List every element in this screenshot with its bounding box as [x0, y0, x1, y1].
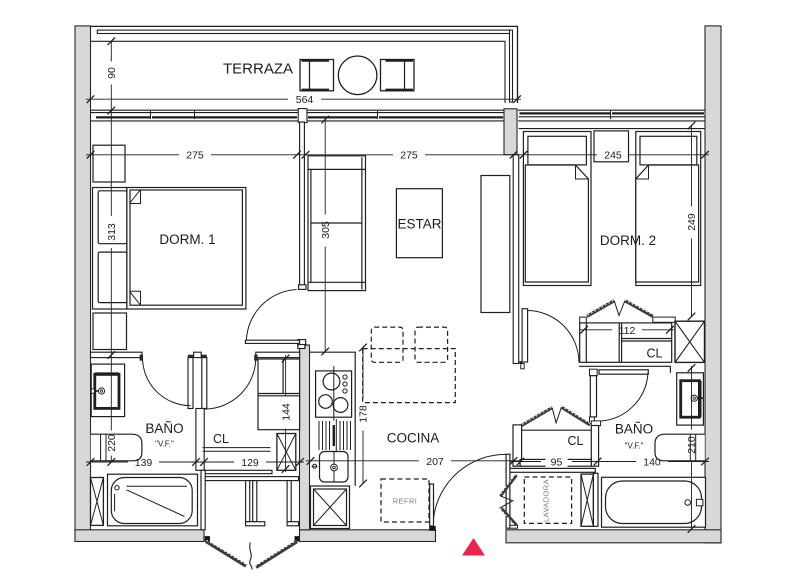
- svg-text:DORM. 2: DORM. 2: [600, 233, 656, 248]
- svg-text:305: 305: [320, 221, 332, 239]
- svg-text:CL: CL: [647, 347, 663, 361]
- svg-text:564: 564: [296, 94, 314, 106]
- svg-text:"V.F.": "V.F.": [625, 442, 644, 451]
- svg-text:245: 245: [604, 150, 622, 162]
- svg-text:220: 220: [106, 434, 118, 452]
- svg-text:90: 90: [106, 67, 118, 79]
- svg-text:249: 249: [686, 213, 698, 231]
- svg-text:COCINA: COCINA: [387, 430, 440, 445]
- svg-text:CL: CL: [213, 432, 229, 446]
- svg-text:313: 313: [106, 223, 118, 241]
- svg-text:ESTAR: ESTAR: [397, 217, 441, 232]
- svg-text:DORM. 1: DORM. 1: [159, 232, 215, 247]
- svg-text:140: 140: [643, 457, 661, 469]
- svg-text:275: 275: [400, 150, 418, 162]
- svg-text:BAÑO: BAÑO: [615, 422, 653, 437]
- svg-text:LAVADORA: LAVADORA: [542, 479, 551, 522]
- svg-text:207: 207: [426, 456, 444, 468]
- svg-text:BAÑO: BAÑO: [145, 421, 183, 436]
- svg-text:178: 178: [358, 405, 370, 423]
- svg-text:139: 139: [135, 457, 153, 469]
- svg-text:REFRI: REFRI: [393, 497, 418, 506]
- svg-text:275: 275: [186, 150, 204, 162]
- svg-text:"V.F.": "V.F.": [155, 440, 174, 449]
- svg-text:TERRAZA: TERRAZA: [223, 61, 293, 78]
- svg-text:CL: CL: [568, 434, 584, 448]
- svg-text:112: 112: [619, 325, 636, 337]
- svg-text:144: 144: [280, 403, 292, 421]
- svg-text:95: 95: [551, 457, 563, 469]
- svg-text:210: 210: [686, 436, 698, 454]
- svg-text:129: 129: [241, 457, 259, 469]
